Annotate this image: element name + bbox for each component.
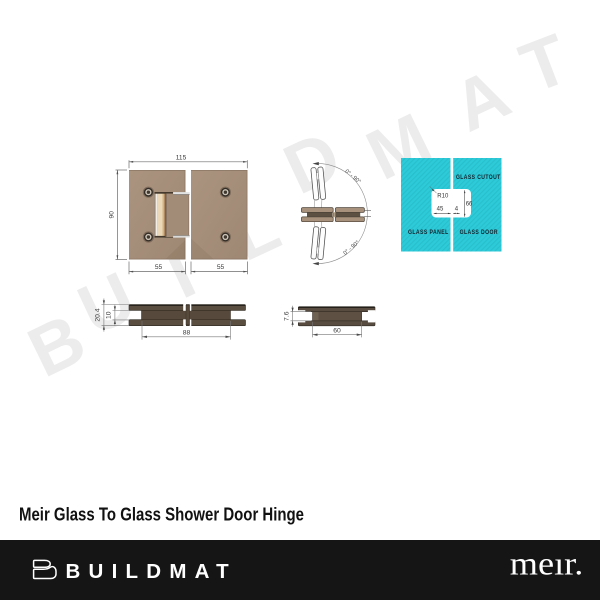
svg-text:7.6: 7.6 bbox=[283, 311, 290, 321]
svg-text:60: 60 bbox=[333, 327, 341, 334]
svg-text:GLASS PANEL: GLASS PANEL bbox=[408, 230, 449, 236]
svg-text:55: 55 bbox=[217, 264, 225, 271]
svg-text:A: A bbox=[442, 54, 522, 147]
svg-text:BUILDMAT: BUILDMAT bbox=[66, 560, 237, 583]
svg-text:90: 90 bbox=[109, 211, 116, 219]
svg-text:45: 45 bbox=[437, 207, 444, 213]
svg-text:10: 10 bbox=[106, 311, 113, 319]
svg-text:88: 88 bbox=[183, 329, 191, 336]
svg-text:GLASS CUTOUT: GLASS CUTOUT bbox=[456, 175, 501, 181]
svg-text:66: 66 bbox=[466, 202, 473, 208]
svg-text:20.4: 20.4 bbox=[95, 308, 102, 321]
svg-text:T: T bbox=[510, 20, 579, 109]
svg-text:Meir Glass To Glass Shower Doo: Meir Glass To Glass Shower Door Hinge bbox=[19, 505, 304, 525]
svg-text:GLASS DOOR: GLASS DOOR bbox=[460, 230, 499, 236]
svg-text:R10: R10 bbox=[437, 194, 449, 200]
svg-text:0° - 90°: 0° - 90° bbox=[343, 240, 361, 257]
svg-text:D: D bbox=[273, 117, 353, 210]
svg-text:55: 55 bbox=[155, 264, 163, 271]
svg-text:115: 115 bbox=[176, 155, 187, 162]
svg-text:meır.: meır. bbox=[510, 547, 584, 583]
